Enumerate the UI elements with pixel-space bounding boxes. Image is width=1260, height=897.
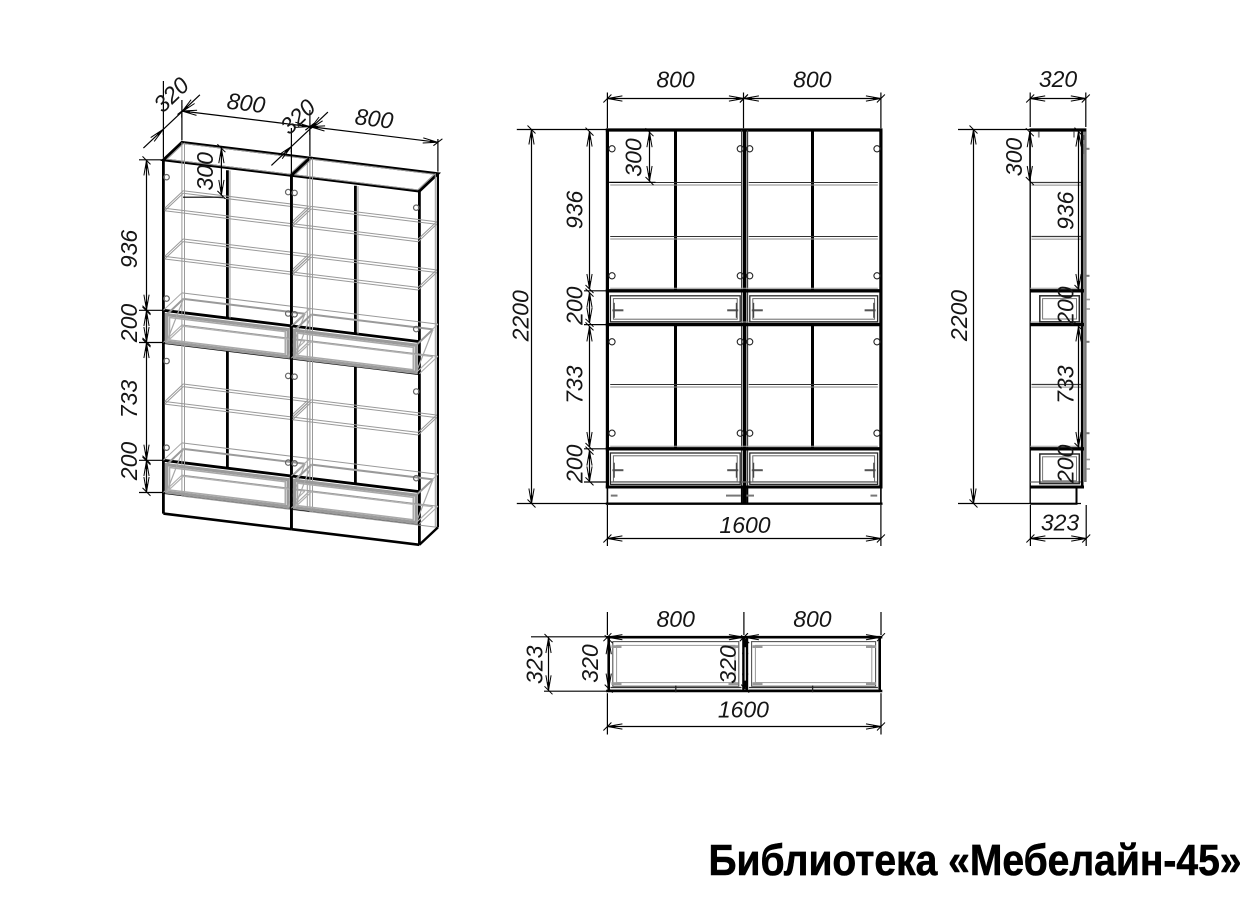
svg-text:1600: 1600 [719,512,770,538]
svg-text:733: 733 [116,380,142,419]
svg-text:200: 200 [1053,286,1079,326]
svg-text:200: 200 [116,304,142,344]
svg-text:200: 200 [561,444,587,484]
svg-text:800: 800 [657,606,696,632]
svg-text:200: 200 [1053,444,1079,484]
svg-text:800: 800 [226,88,267,119]
svg-text:2200: 2200 [946,290,972,342]
svg-text:Библиотека «Мебелайн-45»: Библиотека «Мебелайн-45» [709,836,1242,885]
svg-text:323: 323 [521,645,547,684]
svg-text:320: 320 [577,644,603,683]
svg-text:800: 800 [354,103,395,134]
svg-text:323: 323 [1041,510,1080,536]
svg-text:800: 800 [793,606,832,632]
svg-text:200: 200 [116,442,142,482]
svg-text:300: 300 [621,138,647,177]
svg-text:733: 733 [561,365,587,404]
svg-text:936: 936 [116,230,142,269]
svg-text:200: 200 [561,286,587,326]
svg-text:733: 733 [1053,365,1079,404]
svg-text:1600: 1600 [718,696,769,722]
svg-text:300: 300 [1001,138,1027,177]
svg-text:300: 300 [192,152,218,191]
svg-text:800: 800 [793,67,832,93]
svg-text:936: 936 [561,191,587,230]
svg-text:800: 800 [656,67,695,93]
svg-text:320: 320 [715,645,741,684]
svg-text:2200: 2200 [507,290,533,342]
svg-text:936: 936 [1053,191,1079,230]
svg-text:320: 320 [1039,66,1078,92]
